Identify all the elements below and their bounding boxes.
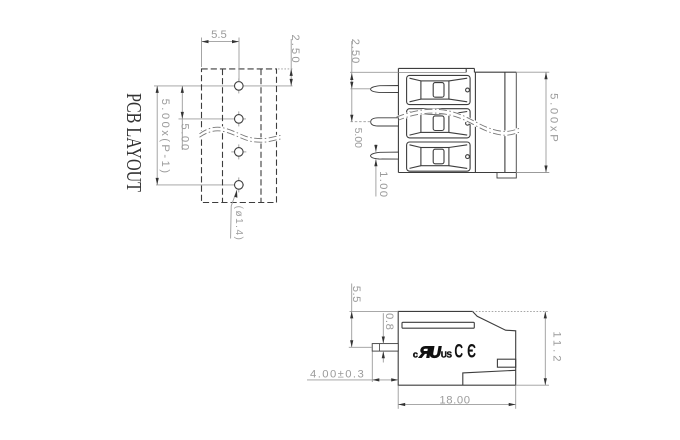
svg-text:18.00: 18.00 [439, 394, 470, 406]
svg-text:11.2: 11.2 [550, 331, 562, 364]
svg-text:5.5: 5.5 [350, 286, 362, 303]
svg-text:5.00x(P-1): 5.00x(P-1) [159, 99, 171, 176]
svg-text:(ø1.4): (ø1.4) [233, 206, 244, 242]
svg-text:PCB LAYOUT: PCB LAYOUT [122, 93, 146, 192]
svg-text:5.00: 5.00 [178, 123, 190, 151]
svg-text:Є: Є [467, 341, 476, 362]
svg-text:c: c [413, 350, 418, 361]
svg-text:5.5: 5.5 [211, 29, 227, 41]
svg-text:4.00±0.3: 4.00±0.3 [310, 368, 365, 380]
svg-text:5.00xP: 5.00xP [548, 93, 560, 144]
svg-text:C: C [454, 340, 463, 362]
svg-text:1.00: 1.00 [377, 171, 389, 198]
svg-text:2.50: 2.50 [289, 34, 301, 64]
svg-text:5.00: 5.00 [352, 128, 364, 149]
svg-text:ЯU: ЯU [418, 344, 442, 362]
svg-text:US: US [441, 351, 453, 360]
svg-text:2.50: 2.50 [349, 39, 361, 65]
svg-text:0.8: 0.8 [383, 313, 395, 331]
